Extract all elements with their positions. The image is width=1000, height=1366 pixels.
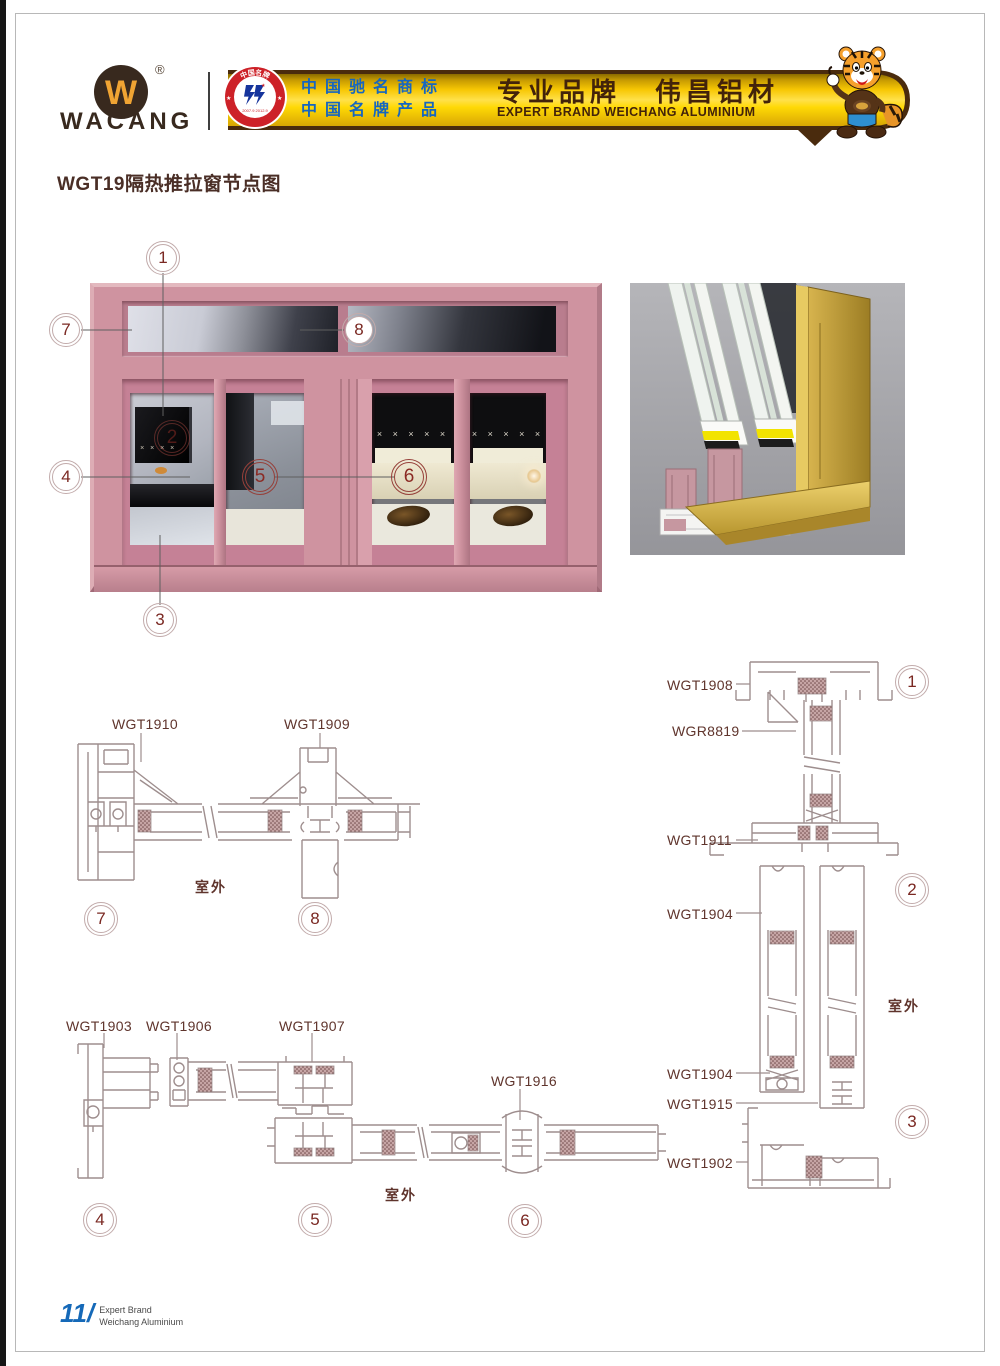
wall-x-pattern: × × × × ×	[372, 429, 454, 439]
floor	[130, 507, 214, 545]
section-callout-1: 1	[898, 668, 926, 696]
profile-3d-render	[630, 283, 905, 555]
part-label-wgt1904-a: WGT1904	[667, 906, 733, 922]
section-callout-5: 5	[301, 1206, 329, 1234]
section-drawings	[0, 0, 1000, 1366]
callout-8: 8	[345, 316, 373, 344]
part-label-wgt1902: WGT1902	[667, 1155, 733, 1171]
decor-bowl	[155, 467, 167, 474]
section-7-wgt1910	[78, 744, 292, 880]
part-label-wgt1906: WGT1906	[146, 1018, 212, 1034]
catalog-page: W ® WACANG 中国驰名商标 中国名牌产品 专业品牌 伟昌铝材 EXPER…	[0, 0, 1000, 1366]
section-callout-8: 8	[301, 905, 329, 933]
bottom-frame-sill	[94, 565, 597, 592]
room-photo-bedroom-right: × × × × ×	[470, 393, 546, 545]
banner-english: EXPERT BRAND WEICHANG ALUMINIUM	[497, 105, 755, 119]
part-label-wgt1911: WGT1911	[667, 832, 732, 848]
section-4-wgt1903	[78, 1044, 278, 1178]
callout-3: 3	[146, 606, 174, 634]
section-callout-3: 3	[898, 1108, 926, 1136]
tiger-mascot-icon	[820, 42, 912, 144]
brand-wordmark: WACANG	[60, 108, 193, 136]
banner-slogan-right: 伟昌铝材	[655, 72, 779, 109]
part-label-wgt1907: WGT1907	[279, 1018, 345, 1034]
wall-x-pattern: × × × × ×	[470, 429, 546, 439]
part-label-wgt1904-b: WGT1904	[667, 1066, 733, 1082]
svg-text:★: ★	[226, 95, 231, 102]
callout-7: 7	[52, 316, 80, 344]
part-label-wgr8819: WGR8819	[672, 723, 739, 739]
section-8-wgt1909	[246, 748, 420, 898]
callout-4: 4	[52, 463, 80, 491]
section-6-wgt1916	[352, 1111, 666, 1173]
callout-1: 1	[149, 244, 177, 272]
sliding-section: × × × × × × × × × × × × × ×	[122, 379, 568, 569]
banner-cn-line1: 中国驰名商标	[301, 76, 445, 99]
section-2-wgt1911	[710, 823, 898, 1108]
footer-line2: Weichang Aluminium	[99, 1316, 183, 1328]
page-border	[15, 13, 985, 1352]
part-label-wgt1910: WGT1910	[112, 716, 178, 732]
china-top-brand-badge-icon: 中国名牌 CHINA TOP BRAND ★ ★ ★ 2007.9 2012.9	[221, 63, 289, 131]
badge-dates: 2007.9 2012.9	[242, 108, 268, 113]
transom-glass-right	[348, 306, 556, 352]
svg-text:★: ★	[261, 83, 266, 89]
outdoor-label-3: 室外	[385, 1185, 417, 1205]
part-label-wgt1903: WGT1903	[66, 1018, 132, 1034]
white-rug	[226, 509, 304, 545]
footer-line1: Expert Brand	[99, 1304, 183, 1316]
part-label-wgt1909: WGT1909	[284, 716, 350, 732]
room-photo-living-tv: × × × ×	[130, 393, 214, 545]
footer-brand-lines: Expert Brand Weichang Aluminium	[99, 1300, 183, 1328]
sash-stile	[454, 379, 470, 569]
part-label-wgt1916: WGT1916	[491, 1073, 557, 1089]
banner-slogan: 专业品牌 伟昌铝材	[497, 72, 779, 109]
page-footer: 11 / Expert Brand Weichang Aluminium	[60, 1300, 183, 1328]
transom-glass-left	[128, 306, 338, 352]
footer-slash: /	[87, 1300, 94, 1326]
scan-edge	[0, 0, 6, 1366]
center-mullion	[304, 379, 372, 569]
page-number: 11	[60, 1300, 87, 1326]
label-leader-lines	[104, 684, 818, 1162]
section-callout-6: 6	[511, 1207, 539, 1235]
callout-5-overlay: 5	[245, 462, 275, 492]
tv-cabinet	[130, 484, 214, 509]
header-divider	[208, 72, 210, 130]
section-callout-7: 7	[87, 905, 115, 933]
svg-text:★: ★	[277, 95, 282, 102]
section-callout-4: 4	[86, 1206, 114, 1234]
callout-6-overlay: 6	[394, 462, 424, 492]
page-title: WGT19隔热推拉窗节点图	[57, 169, 281, 196]
outdoor-label-1: 室外	[195, 877, 227, 897]
part-label-wgt1915: WGT1915	[667, 1096, 733, 1112]
section-1-wgt1908	[736, 662, 892, 823]
window-light	[271, 401, 304, 425]
banner-slogan-left: 专业品牌	[497, 72, 621, 109]
registered-mark: ®	[155, 62, 165, 77]
callout-2-overlay: 2	[157, 423, 187, 453]
svg-text:W: W	[105, 74, 138, 112]
section-3-wgt1902	[742, 1108, 890, 1188]
banner-cn-line2: 中国名牌产品	[301, 99, 445, 122]
sash-stile	[214, 379, 226, 569]
section-5-wgt1907	[267, 1056, 352, 1163]
part-label-wgt1908: WGT1908	[667, 677, 733, 693]
banner-cn-text: 中国驰名商标 中国名牌产品	[301, 76, 445, 122]
section-callout-2: 2	[898, 876, 926, 904]
outdoor-label-2: 室外	[888, 996, 920, 1016]
